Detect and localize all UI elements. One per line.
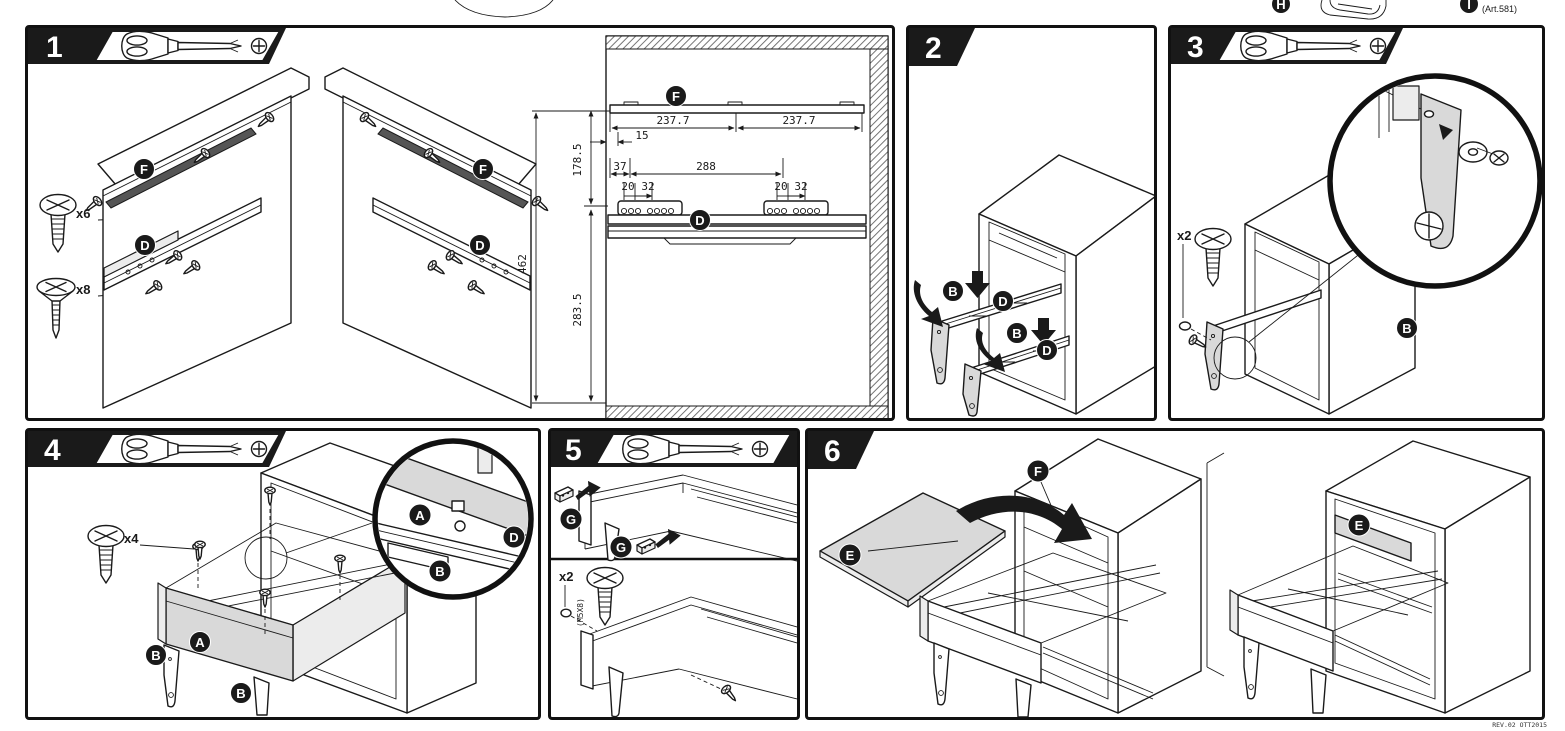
step-2-panel: 2 B D xyxy=(906,25,1157,421)
svg-text:15: 15 xyxy=(635,129,648,142)
svg-text:E: E xyxy=(1355,518,1364,533)
svg-text:H: H xyxy=(1276,0,1285,12)
part-label-d: D xyxy=(993,291,1014,312)
step-5-header: 5 xyxy=(551,431,797,467)
instruction-sheet: H I (Art.581) 1 xyxy=(0,0,1565,731)
step-4-panel: 4 xyxy=(25,428,541,720)
revision-text: REV.02 OTT2015 xyxy=(1492,721,1547,729)
part-label-b: B xyxy=(1007,323,1028,344)
part-label-d: D xyxy=(1037,340,1058,361)
step-number: 6 xyxy=(824,435,841,468)
svg-text:D: D xyxy=(475,238,484,253)
svg-text:F: F xyxy=(140,162,148,177)
svg-text:B: B xyxy=(236,686,245,701)
svg-text:D: D xyxy=(695,213,704,228)
screw-pan-head-x4: x4 xyxy=(88,526,205,584)
step-1-header: 1 xyxy=(28,28,286,64)
cropped-packet-drawing xyxy=(1321,0,1386,19)
screw-spec: (M5X8) xyxy=(576,598,585,627)
cabinet-drawing xyxy=(979,155,1154,414)
part-label-b: B xyxy=(1397,318,1418,339)
svg-text:32: 32 xyxy=(794,180,807,193)
svg-text:A: A xyxy=(415,508,425,523)
screw-count: x8 xyxy=(76,282,90,297)
part-label-zoom-a: A xyxy=(409,504,431,526)
svg-text:37: 37 xyxy=(613,160,626,173)
part-label-b: B xyxy=(231,683,252,704)
finished-assembly-drawing: E xyxy=(1207,441,1530,713)
svg-text:G: G xyxy=(616,540,626,555)
svg-text:288: 288 xyxy=(696,160,716,173)
step-4-header: 4 xyxy=(28,431,286,467)
svg-text:462: 462 xyxy=(516,254,529,274)
part-label-b: B xyxy=(146,645,167,666)
part-label-zoom-b: B xyxy=(429,560,451,582)
svg-text:20: 20 xyxy=(621,180,634,193)
detail-zoom-circle: A B D xyxy=(375,441,531,597)
svg-text:B: B xyxy=(1012,326,1021,341)
step-6-header: 6 xyxy=(808,431,874,469)
svg-text:32: 32 xyxy=(641,180,654,193)
part-label-g: G xyxy=(560,508,582,530)
part-label-e-installed: E xyxy=(1348,514,1370,536)
svg-text:D: D xyxy=(509,530,518,545)
dimension-drawing: F 237.7 237.7 15 178.5 37 xyxy=(516,36,888,418)
part-label-e: E xyxy=(839,544,861,566)
part-label-f: F xyxy=(134,159,155,180)
clip-installation-drawing: G G xyxy=(555,475,797,561)
part-label-b: B xyxy=(943,281,964,302)
screw-fastening-drawing: x2 (M5X8) xyxy=(559,568,797,717)
svg-text:E: E xyxy=(846,548,855,563)
panel-insertion-drawing: E F xyxy=(820,439,1201,717)
svg-text:F: F xyxy=(479,162,487,177)
part-label-i: I xyxy=(1460,0,1479,14)
step-number: 1 xyxy=(46,31,63,64)
step-3-panel: 3 x2 xyxy=(1168,25,1545,421)
part-label-h: H xyxy=(1272,0,1291,14)
svg-text:I: I xyxy=(1467,0,1471,12)
svg-text:F: F xyxy=(672,89,680,104)
part-label-f: F xyxy=(1027,460,1049,482)
part-label-a: A xyxy=(190,632,211,653)
left-side-panel-drawing: F D xyxy=(83,68,309,408)
part-label-d: D xyxy=(470,235,491,256)
part-label-d: D xyxy=(690,210,711,231)
right-side-panel-drawing: F D xyxy=(325,68,551,408)
step-3-header: 3 xyxy=(1171,28,1403,64)
screw-count: x2 xyxy=(1177,228,1191,243)
step-number: 3 xyxy=(1187,31,1204,64)
clip-icon xyxy=(555,487,573,502)
part-label-g: G xyxy=(610,536,632,558)
step-6-panel: 6 E F xyxy=(805,428,1545,720)
svg-text:F: F xyxy=(1034,464,1042,479)
svg-text:178.5: 178.5 xyxy=(571,143,584,176)
step-number: 2 xyxy=(925,32,942,65)
part-label-f: F xyxy=(473,159,494,180)
screw-count: x4 xyxy=(124,531,139,546)
screw-count: x2 xyxy=(559,569,573,584)
bracket-leg-icon xyxy=(1244,637,1259,699)
svg-text:283.5: 283.5 xyxy=(571,293,584,326)
part-label-zoom-d: D xyxy=(503,526,525,548)
cropped-circle-arc xyxy=(455,0,553,17)
svg-text:A: A xyxy=(195,635,205,650)
svg-text:D: D xyxy=(140,238,149,253)
top-strip: H I (Art.581) xyxy=(0,0,1565,22)
step-number: 5 xyxy=(565,434,582,467)
part-label-f: F xyxy=(666,86,687,107)
svg-text:B: B xyxy=(435,564,444,579)
detail-zoom-circle xyxy=(1330,76,1540,286)
svg-text:B: B xyxy=(151,648,160,663)
step-number: 4 xyxy=(44,434,61,467)
svg-text:B: B xyxy=(1402,321,1411,336)
step-2-header: 2 xyxy=(909,28,975,66)
svg-text:20: 20 xyxy=(774,180,787,193)
pan-head-screw-icon xyxy=(587,568,623,626)
art-number: (Art.581) xyxy=(1482,4,1517,14)
step-5-panel: 5 G G xyxy=(548,428,800,720)
clip-icon xyxy=(637,539,655,554)
bracket-leg-icon xyxy=(934,643,949,705)
svg-text:D: D xyxy=(998,294,1007,309)
svg-text:D: D xyxy=(1042,343,1051,358)
svg-text:B: B xyxy=(948,284,957,299)
step-1-panel: 1 x6 x8 xyxy=(25,25,895,421)
svg-text:G: G xyxy=(566,512,576,527)
part-label-d: D xyxy=(135,235,156,256)
svg-text:237.7: 237.7 xyxy=(656,114,689,127)
svg-text:237.7: 237.7 xyxy=(782,114,815,127)
